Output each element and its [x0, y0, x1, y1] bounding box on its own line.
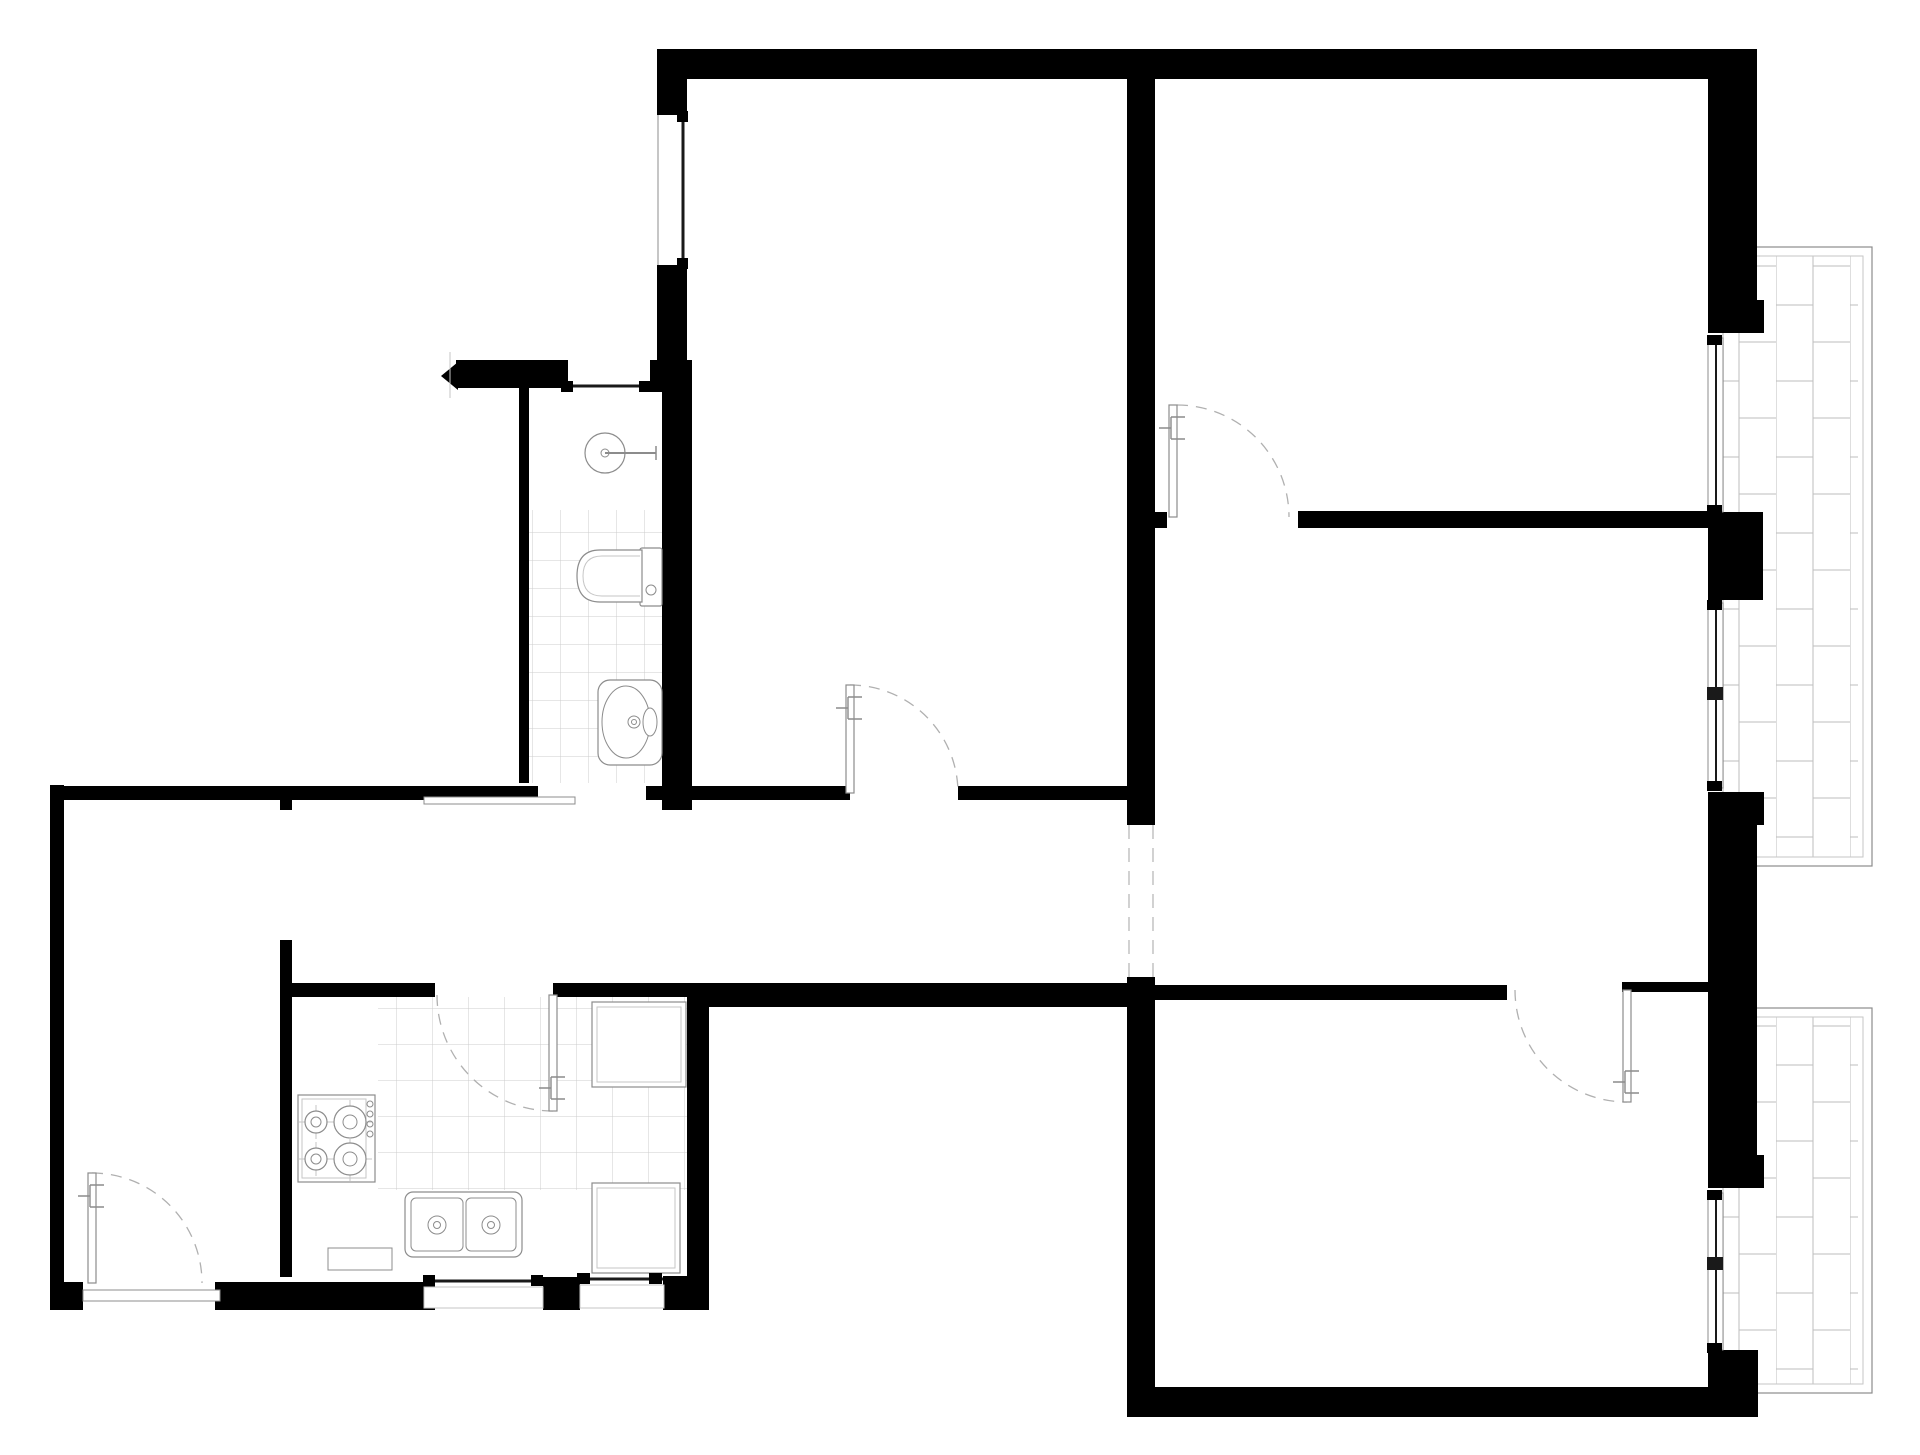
cutting-board [328, 1248, 392, 1270]
floor-plan [0, 0, 1920, 1455]
window-kitchen2-hinge-b [649, 1273, 662, 1284]
window-midright-hinge-a [1707, 600, 1722, 610]
door-bottomright-leaf [1623, 990, 1631, 1102]
leftroom-east-wall [280, 940, 292, 1277]
door-entrance-arc [92, 1173, 202, 1283]
window-left-hinge-bottom [677, 258, 688, 269]
corridor-south-wall [709, 983, 1127, 1007]
window-bottomright-hinge-b [1707, 1343, 1722, 1353]
window-left-hinge-top [677, 111, 688, 122]
kitchen-east-wall [687, 983, 709, 1276]
door-bottomright-arc [1515, 990, 1627, 1102]
hall-north-wall-c [958, 786, 1127, 800]
door-topmiddle-leaf [846, 685, 854, 793]
right-wall-mid-corbel-bottom [1743, 1155, 1764, 1188]
toilet-bowl [577, 550, 642, 602]
bottom-wall-corner [663, 1276, 709, 1310]
window-kitchen1-hinge-b [531, 1275, 543, 1286]
right-wall-top-corbel [1743, 300, 1764, 333]
stove [298, 1095, 375, 1182]
door-topmiddle-arc [850, 685, 958, 793]
floor-plan-drawing [0, 0, 1920, 1455]
divider-wall-lower [1127, 977, 1155, 1417]
bathroom-top-wall [456, 360, 568, 388]
partition-topright [1298, 511, 1708, 528]
right-wall-mid [1708, 792, 1757, 1188]
window-bath-hinge-left [561, 381, 573, 392]
door-topright-leaf [1169, 405, 1177, 517]
bathroom-right-wall [662, 388, 692, 810]
divider-wall-upper [1127, 77, 1155, 825]
bath-basin-faucet [628, 716, 640, 728]
bottom-wall-pier [543, 1277, 580, 1310]
door-entrance-leaf [88, 1173, 96, 1283]
balcony-door-top-hinge-b [1707, 505, 1722, 515]
window-bath-hinge-right [639, 381, 651, 392]
partition-topright-jamb [1153, 512, 1167, 528]
kitchen-north-wall-a [292, 983, 435, 997]
bathroom-top-corner [650, 360, 692, 392]
bathroom-sliding-door-leaf [424, 797, 575, 804]
bath-basin-side [643, 708, 657, 736]
left-exterior-wall [50, 785, 64, 1282]
fridge-box [592, 1002, 686, 1087]
window-kitchen2-sill [580, 1285, 664, 1308]
right-wall-pier [1708, 512, 1763, 600]
door-kitchen-leaf [549, 995, 557, 1111]
kitchen-north-wall-b [553, 983, 687, 997]
window-bottomright-hinge-a [1707, 1190, 1722, 1200]
bottomright-corner [1708, 1350, 1758, 1417]
partition-bottomright-stub [1622, 982, 1708, 992]
bottomleft-corner [50, 1282, 83, 1310]
window-kitchen1-hinge-a [423, 1275, 435, 1286]
partition-bottomright [1155, 985, 1507, 1000]
balcony-door-top-hinge-a [1707, 335, 1722, 345]
right-wall-mid-corbel-top [1743, 792, 1764, 825]
entrance-threshold [83, 1290, 220, 1301]
door-topright-arc [1177, 405, 1289, 517]
toilet-tank [640, 548, 662, 606]
right-wall-top [1708, 49, 1757, 333]
window-midright-hinge-b [1707, 781, 1722, 791]
window-kitchen2-hinge-a [577, 1273, 590, 1284]
bathroom-left-wall [519, 388, 529, 783]
hall-north-wall-b [646, 786, 850, 800]
exterior-wall-top [657, 49, 1757, 79]
bottomright-room-bottom-wall [1127, 1387, 1708, 1417]
window-midright-mullion [1707, 687, 1723, 700]
exterior-wall-topleft-upper [657, 49, 687, 115]
leftroom-east-stub [280, 795, 292, 810]
counter-box [592, 1183, 680, 1273]
bottom-wall-a [215, 1282, 435, 1310]
window-kitchen1-sill [424, 1287, 543, 1308]
window-bottomright-mullion [1707, 1257, 1723, 1270]
